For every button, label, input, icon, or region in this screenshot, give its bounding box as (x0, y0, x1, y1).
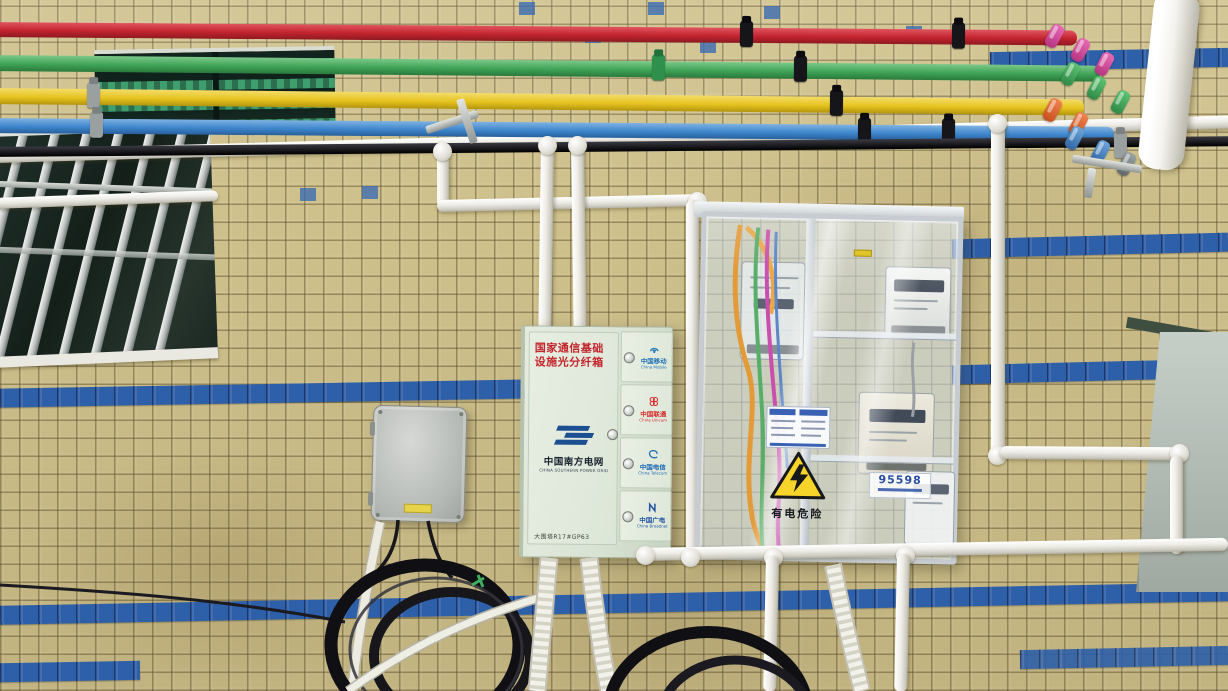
photo-scene: 国家通信基础 设施光分纤箱 中国南方电网 CHINA SOUTHERN POWE… (0, 0, 1228, 691)
cables-and-conduits (0, 0, 1228, 691)
